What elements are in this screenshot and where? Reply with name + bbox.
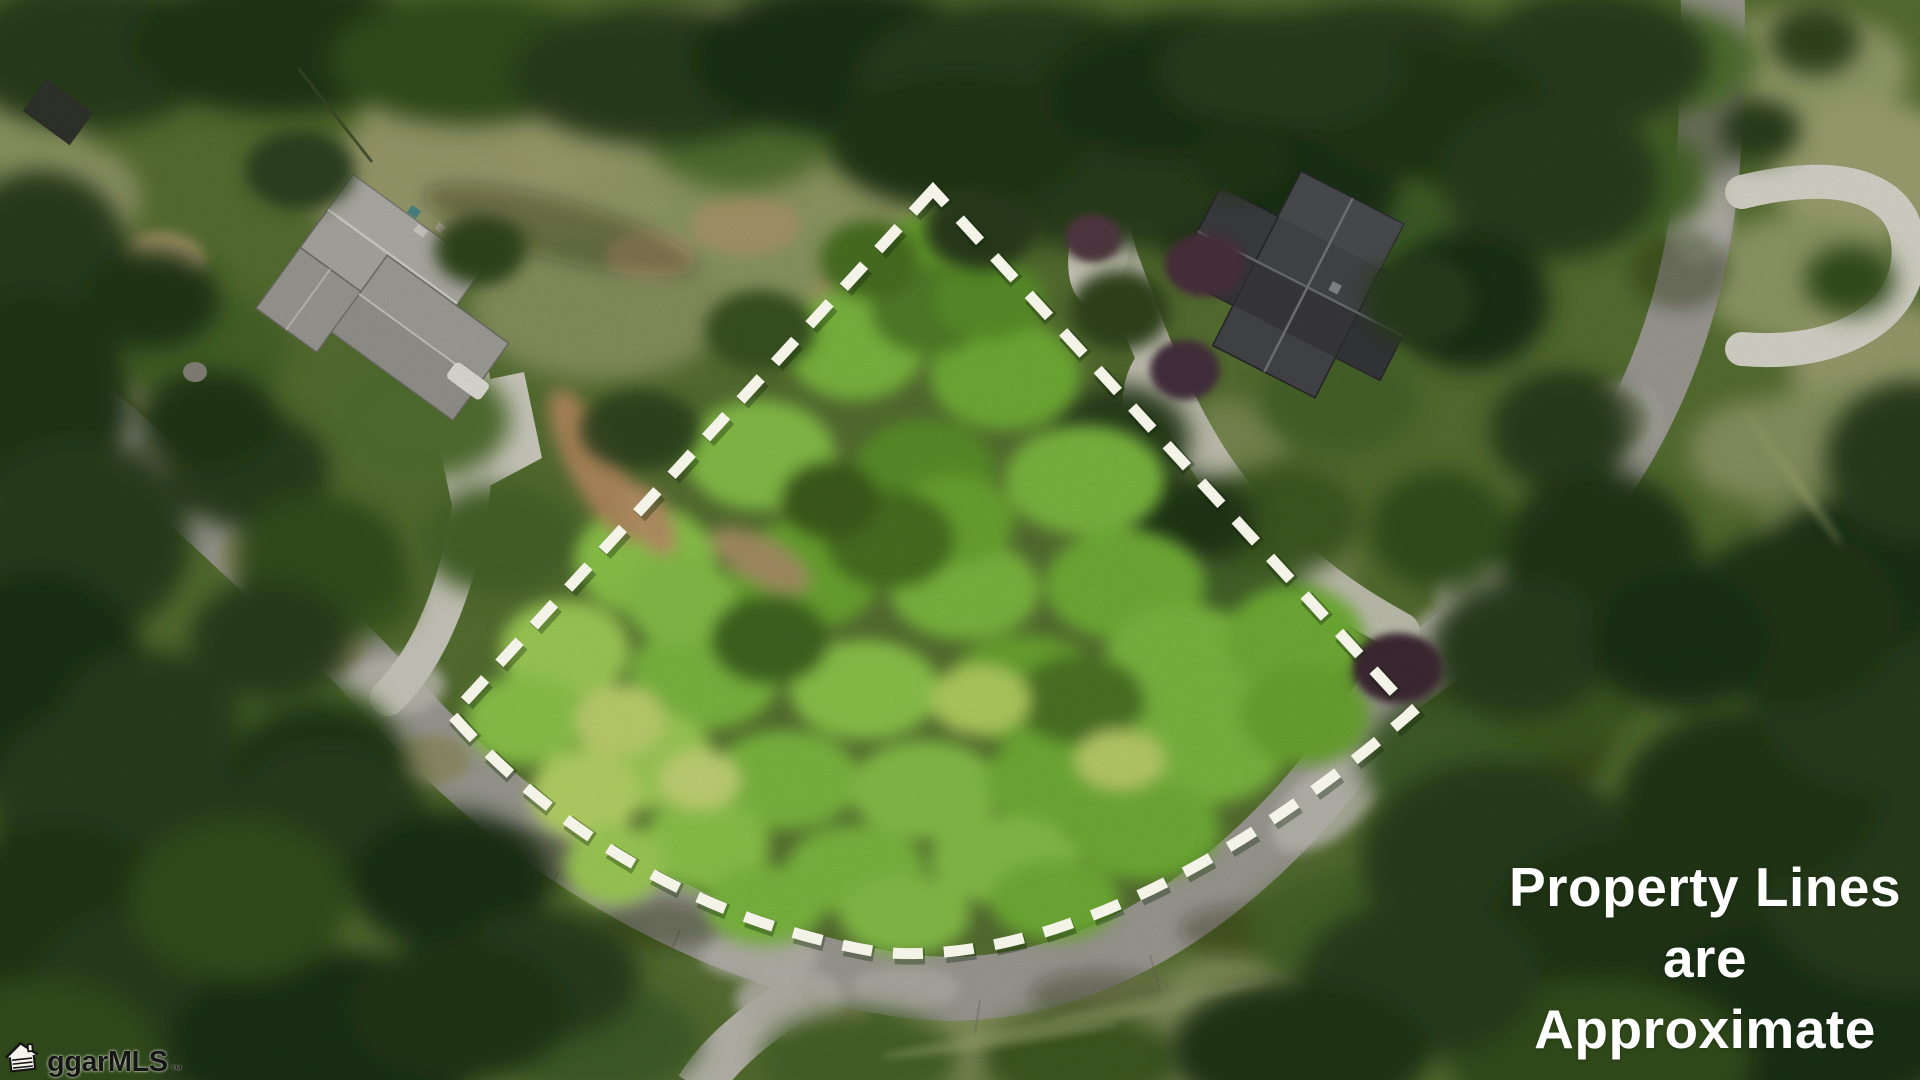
watermark-logo: ggarMLS ™ [2, 1039, 183, 1077]
watermark-text: ggarMLS [47, 1048, 168, 1077]
house-logo-icon [2, 1039, 44, 1077]
watermark-trademark: ™ [171, 1063, 183, 1077]
disclaimer-line-2: are [1440, 923, 1920, 994]
aerial-photo: Property Lines are Approximate ggarMLS ™ [0, 0, 1920, 1080]
disclaimer-line-1: Property Lines [1440, 852, 1920, 923]
disclaimer-text: Property Lines are Approximate [1440, 852, 1920, 1065]
disclaimer-line-3: Approximate [1440, 994, 1920, 1065]
